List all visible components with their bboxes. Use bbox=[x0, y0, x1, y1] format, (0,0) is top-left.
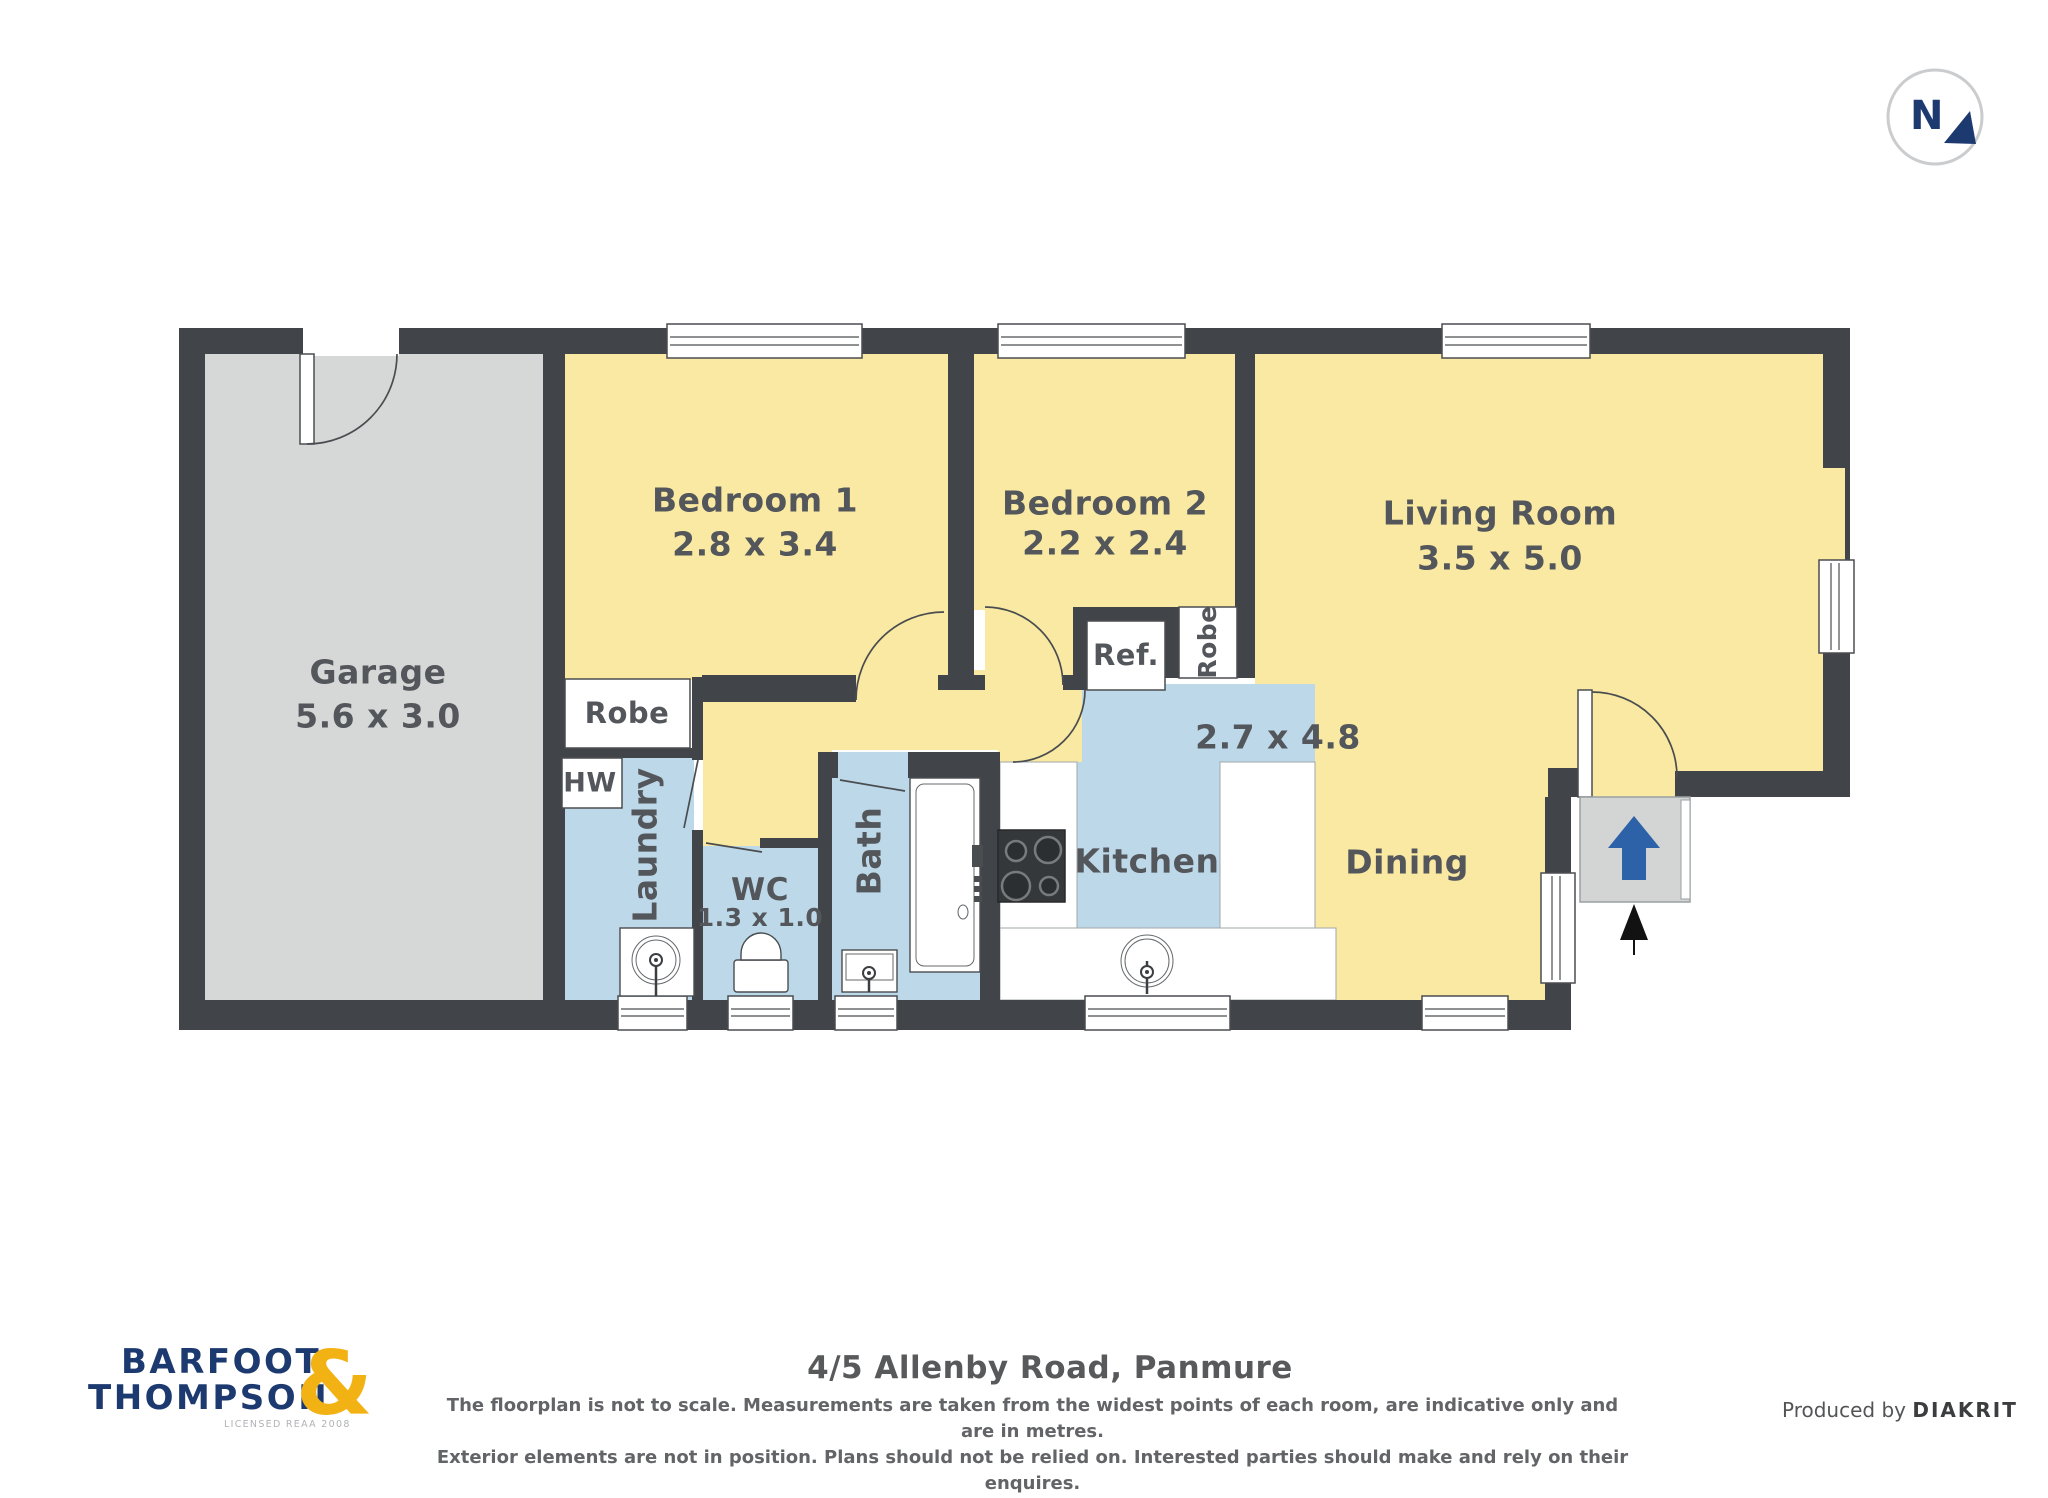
dining-label: Dining bbox=[1345, 843, 1469, 882]
living-label: Living Room bbox=[1383, 494, 1617, 533]
bedroom1-label: Bedroom 1 bbox=[652, 481, 858, 520]
entry-porch bbox=[1580, 797, 1690, 955]
floorplan-page: N Garage 5.6 x 3.0 Bedroom 1 2.8 x 3.4 B… bbox=[0, 0, 2048, 1494]
produced-by: Produced by DIAKRIT bbox=[1782, 1398, 2018, 1422]
produced-by-brand: DIAKRIT bbox=[1912, 1398, 2018, 1422]
shower-icon bbox=[910, 778, 983, 972]
living-wall-recess bbox=[1823, 468, 1845, 560]
window-dining-bottom bbox=[1422, 996, 1508, 1030]
robe-bedroom1-label: Robe bbox=[585, 696, 670, 730]
property-address: 4/5 Allenby Road, Panmure bbox=[550, 1350, 1550, 1386]
disclaimer-line1: The floorplan is not to scale. Measureme… bbox=[430, 1393, 1635, 1445]
window-bedroom1 bbox=[667, 324, 862, 358]
garage-door-leaf bbox=[300, 354, 314, 444]
barfoot-thompson-logo: BARFOOT THOMPSON & LICENSED REAA 2008 bbox=[88, 1344, 368, 1430]
window-bedroom2 bbox=[998, 324, 1185, 358]
window-dining-right bbox=[1541, 873, 1575, 983]
disclaimer: The floorplan is not to scale. Measureme… bbox=[430, 1393, 1635, 1497]
garage-door-opening bbox=[303, 324, 399, 356]
laundry-tub-icon bbox=[620, 928, 694, 996]
bath-sink-icon bbox=[842, 950, 897, 992]
window-kitchen bbox=[1085, 996, 1230, 1030]
bath-label: Bath bbox=[850, 807, 889, 896]
bedroom2-floor bbox=[970, 345, 1240, 610]
wc-dims: 1.3 x 1.0 bbox=[697, 903, 824, 932]
laundry-label: Laundry bbox=[626, 767, 665, 922]
kitchen-counter-right bbox=[1220, 762, 1315, 928]
hot-water-label: HW bbox=[563, 767, 616, 798]
garage-label: Garage bbox=[310, 653, 447, 692]
porch-open-door bbox=[1681, 800, 1690, 899]
compass: N bbox=[1888, 70, 1982, 164]
window-living-top bbox=[1442, 324, 1590, 358]
kitchen-dining-dims: 2.7 x 4.8 bbox=[1195, 718, 1361, 757]
kitchen-label: Kitchen bbox=[1074, 842, 1219, 881]
entry-door-leaf bbox=[1578, 690, 1592, 797]
shower-handle bbox=[972, 845, 983, 867]
kitchen-floor-strip bbox=[1000, 928, 1336, 1000]
living-dims: 3.5 x 5.0 bbox=[1417, 539, 1583, 578]
window-bath bbox=[835, 996, 897, 1030]
disclaimer-line2: Exterior elements are not in position. P… bbox=[430, 1445, 1635, 1497]
compass-north-label: N bbox=[1910, 93, 1944, 139]
garage-dims: 5.6 x 3.0 bbox=[295, 697, 461, 736]
entry-pointer-icon bbox=[1620, 904, 1648, 940]
bedroom2-label: Bedroom 2 bbox=[1002, 484, 1208, 523]
bedroom1-dims: 2.8 x 3.4 bbox=[672, 525, 838, 564]
robe-bedroom2-label: Robe bbox=[1193, 605, 1222, 678]
window-living-right bbox=[1819, 560, 1854, 653]
window-wc bbox=[728, 996, 793, 1030]
logo-ampersand: & bbox=[296, 1332, 373, 1435]
floorplan-drawing: N Garage 5.6 x 3.0 Bedroom 1 2.8 x 3.4 B… bbox=[0, 0, 2048, 1494]
bedroom2-dims: 2.2 x 2.4 bbox=[1022, 524, 1188, 563]
stove-icon bbox=[998, 830, 1065, 902]
window-laundry bbox=[618, 996, 687, 1030]
produced-by-prefix: Produced by bbox=[1782, 1398, 1906, 1422]
fridge-label: Ref. bbox=[1093, 638, 1159, 672]
